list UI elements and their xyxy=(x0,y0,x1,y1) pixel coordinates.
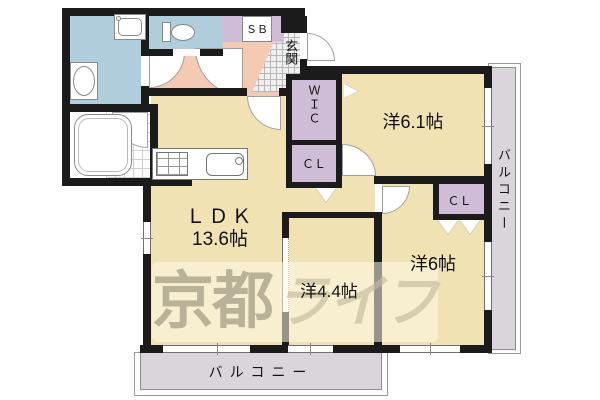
entrance-label: 玄関 xyxy=(283,39,297,65)
wall xyxy=(282,212,382,218)
toilet-door-opening xyxy=(173,49,200,56)
wic-label: ＷＩＣ xyxy=(306,84,323,126)
wall xyxy=(250,345,288,353)
closet1-label: ＣＬ xyxy=(286,155,342,172)
wall xyxy=(300,16,307,33)
wall xyxy=(62,104,158,112)
closet2-door-left xyxy=(438,220,458,234)
wic-door xyxy=(344,84,358,98)
wall xyxy=(460,345,492,353)
wall xyxy=(143,254,151,353)
wall xyxy=(333,345,400,353)
watermark-part1: 京都 xyxy=(152,271,272,333)
toilet-bowl-icon xyxy=(171,24,195,41)
stove-icon xyxy=(156,152,188,176)
washroom-door-opening xyxy=(141,68,149,86)
closet1-door xyxy=(316,188,336,202)
window-tick xyxy=(482,276,494,277)
shoebox-label: ＳＢ xyxy=(242,21,272,37)
wall xyxy=(484,66,492,88)
bathtub-inner xyxy=(78,118,128,172)
wall xyxy=(336,176,342,184)
toilet-tank-icon xyxy=(162,22,171,42)
balcony-right-label: バルコニー xyxy=(494,148,513,233)
wall xyxy=(374,176,492,184)
vanity-basin-icon xyxy=(73,66,95,96)
ldk-balcony-window xyxy=(163,345,250,353)
ldk-size-label: 13.6帖 xyxy=(150,224,290,251)
washer-knob-icon xyxy=(116,16,121,21)
entrance-door-arc xyxy=(307,33,335,61)
wall xyxy=(300,66,492,74)
floor-plan: 京都 ライフ ＬＤＫ 13.6帖 洋6.1帖 洋6帖 洋4.4帖 玄関 ＷＩＣ … xyxy=(0,0,600,400)
bedroom61-label: 洋6.1帖 xyxy=(342,108,484,134)
wall xyxy=(62,8,305,16)
washing-machine-inner xyxy=(118,18,142,36)
wall xyxy=(286,74,342,80)
faucet-icon xyxy=(235,157,243,165)
closet2-label: ＣＬ xyxy=(437,192,482,209)
window-tick xyxy=(310,343,311,355)
window-tick xyxy=(217,343,218,355)
closet2-door-right xyxy=(460,220,480,234)
bedroom6-label: 洋6帖 xyxy=(382,250,484,276)
bedroom44-label: 洋4.4帖 xyxy=(284,277,374,302)
balcony-bottom-label: バルコニー xyxy=(140,362,382,382)
wall xyxy=(149,88,247,96)
wall xyxy=(140,345,163,353)
window-tick xyxy=(430,343,431,355)
wall xyxy=(62,8,70,186)
entrance-door-opening xyxy=(300,33,307,59)
wall xyxy=(286,140,342,145)
